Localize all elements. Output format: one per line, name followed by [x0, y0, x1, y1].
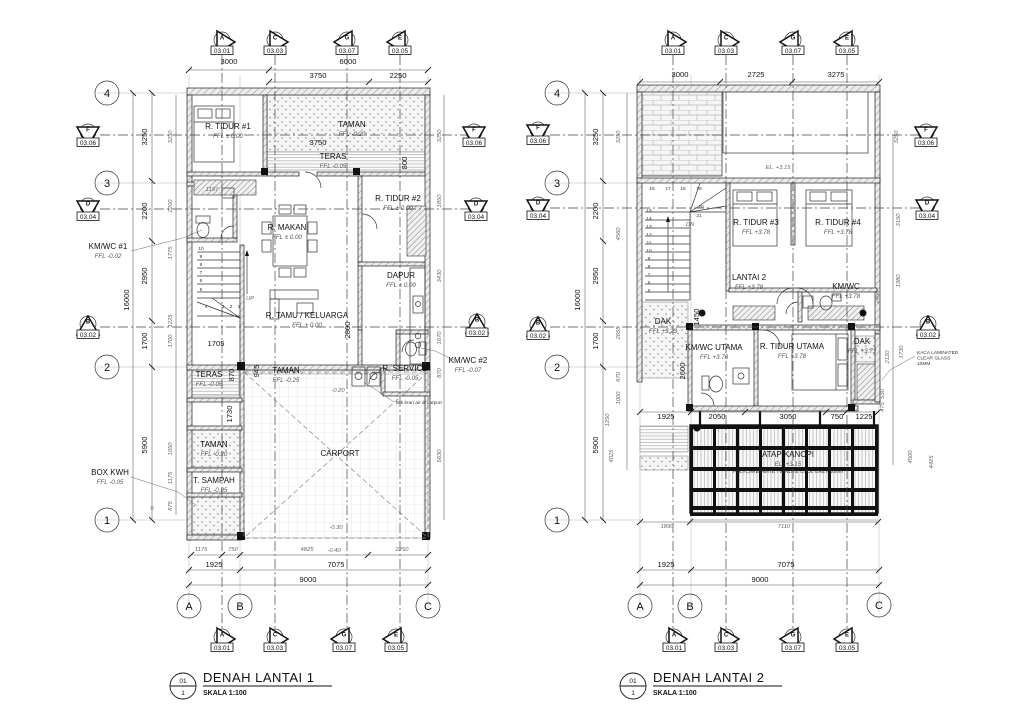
toilet-2 [406, 342, 417, 356]
section-marker-sheet: 03.04 [468, 214, 485, 221]
dimension-text: 19 [696, 186, 702, 192]
dimension-text: 3750 [310, 138, 327, 147]
drain-dot [860, 310, 867, 317]
dimension-text: 1700 [591, 333, 600, 350]
section-marker-sheet: 03.04 [530, 213, 547, 220]
section-marker-letter: G [791, 36, 796, 42]
dimension-text: 13 [646, 224, 652, 230]
dimension-text: 1925 [206, 560, 223, 569]
section-marker-letter: F [472, 128, 476, 134]
plan2-scale-text: SKALA 1:100 [653, 690, 697, 697]
roof-void [723, 88, 868, 153]
room-label: R. TAMU / KELUARGA [266, 311, 349, 320]
section-marker-sheet: 03.02 [80, 332, 97, 339]
room-label: TAMAN [338, 120, 366, 129]
dimension-text: DN [686, 222, 695, 228]
section-marker-sheet: 03.03 [718, 48, 735, 55]
room-level: FFL -0.05 [97, 479, 124, 486]
section-marker-letter: E [398, 36, 402, 42]
kitchen-sink [413, 296, 423, 313]
dimension-text: 16000 [573, 289, 582, 310]
dimension-text: 7110 [778, 524, 791, 530]
dimension-text: 8 [200, 262, 203, 268]
dimension-text: 21 [696, 213, 702, 219]
dimension-text: 4500 [908, 450, 914, 464]
section-marker-letter: G [791, 633, 796, 639]
room-label: R. TIDUR #4 [815, 218, 861, 227]
room-level: FFL +3.78 [742, 229, 771, 236]
dimension-text: 3250 [437, 129, 443, 143]
wardrobe-1 [194, 180, 256, 195]
dimension-text: 1670 [437, 331, 443, 345]
grid-bubble-label: C [424, 601, 432, 613]
section-marker-sheet: 03.05 [839, 645, 856, 652]
dimension-text: 475 [880, 401, 886, 411]
dimension-text: 2655 [616, 326, 622, 341]
annotation-note: POLYCARBONATE TWINLITE COOL GREY 10mm [733, 469, 843, 475]
plan2: R. TIDUR #3FFL +3.78R. TIDUR #4FFL +3.78… [527, 31, 959, 699]
room-level: FFL -0.05 [392, 375, 419, 382]
dimension-text: 1225 [856, 412, 873, 421]
dimension-text: 2200 [140, 203, 149, 220]
section-marker-letter: D [474, 202, 479, 208]
section-marker-letter: B [536, 321, 541, 327]
dimension-text: 3275 [828, 70, 845, 79]
drawing-sheet: R. TIDUR #1FFL ± 0.00TAMANFFL -0.20TERAS… [0, 0, 1024, 724]
section-marker-sheet: 03.02 [920, 332, 937, 339]
section-marker-sheet: 03.01 [665, 48, 682, 55]
section-marker-letter: C [273, 633, 278, 639]
dimension-text: -0.30 [329, 525, 343, 531]
dimension-text: 4560 [616, 227, 622, 241]
dimension-text: 3250 [616, 130, 622, 144]
room-level: FFL ± 0.00 [292, 322, 322, 329]
dimension-text: 750 [831, 412, 844, 421]
room-level: FFL -0.02 [95, 253, 122, 260]
dimension-text: 11 [647, 240, 652, 246]
section-marker-letter: E [394, 633, 398, 639]
dimension-text: 1050 [168, 442, 174, 456]
grid-bubble-label: 4 [104, 88, 110, 100]
dimension-text: 4825 [301, 547, 315, 553]
annotation-note: KACA LAMINATEDCLEAR GLASS10MM [917, 350, 959, 367]
dimension-text: 2200 [168, 199, 174, 214]
dimension-text: 1175 [168, 471, 174, 484]
dimension-text: 3250 [140, 129, 149, 146]
room-label: DAK [655, 317, 672, 326]
title-number: 01 [179, 678, 187, 685]
sink-utama [733, 368, 749, 384]
dimension-text: 2050 [709, 412, 726, 421]
room-level: FFL -0.05 [201, 487, 228, 494]
room-level: FFL -0.05 [196, 381, 223, 388]
room-level: FFL +3.78 [700, 354, 729, 361]
dimension-text: 14 [646, 216, 652, 222]
room-level: FFL ± 0.00 [213, 133, 243, 140]
grid-bubble-label: C [875, 600, 883, 612]
dimension-text: 3150 [896, 213, 902, 227]
room-label: TAMAN [272, 366, 300, 375]
room-label: R. SERVICE [382, 364, 427, 373]
dimension-text: 1700 [140, 333, 149, 350]
dak-strip2 [640, 456, 688, 470]
section-marker-sheet: 03.07 [785, 48, 802, 55]
dimension-text: 1850 [437, 194, 443, 208]
dimension-text: 1 [238, 304, 241, 310]
room-label: R. MAKAN [268, 223, 307, 232]
wardrobe-3 [733, 306, 775, 320]
room-label: TERAS [196, 370, 223, 379]
grid-bubble-label: 3 [554, 178, 560, 190]
section-marker-letter: F [536, 126, 540, 132]
section-marker-letter: F [86, 128, 90, 134]
dimension-text: 12 [646, 232, 652, 238]
section-marker-sheet: 03.05 [388, 645, 405, 652]
section-marker-sheet: 03.05 [839, 48, 856, 55]
dimension-text: 870 [227, 369, 236, 382]
dimension-text: 1775 [168, 246, 174, 260]
section-marker-sheet: 03.03 [267, 48, 284, 55]
dimension-text: 875 [168, 500, 174, 510]
dimension-text: 2250 [395, 547, 410, 553]
section-marker-sheet: 03.02 [530, 333, 547, 340]
room-level: FFL -0.25 [273, 377, 300, 384]
drain-dot [694, 425, 701, 432]
dimension-text: 750 [228, 547, 238, 553]
dimension-text: 1250 [605, 413, 611, 427]
dimension-text: 3250 [894, 130, 900, 144]
dimension-text: 2600 [678, 363, 687, 380]
section-marker-letter: G [342, 633, 347, 639]
section-marker-letter: A [220, 633, 225, 639]
room-level: FFL +3.78 [824, 229, 853, 236]
room-label: KM/WC UTAMA [685, 343, 743, 352]
section-marker-letter: C [724, 36, 729, 42]
grid-bubble-label: A [636, 601, 644, 613]
room-level: FFL ± 0.00 [386, 282, 416, 289]
section-marker-sheet: 03.07 [785, 645, 802, 652]
dimension-text: 2950 [591, 268, 600, 285]
toilet-1-tank [196, 216, 210, 223]
section-marker-sheet: 03.01 [214, 48, 231, 55]
dimension-text: 1197 [206, 187, 219, 193]
dimension-text: 2 [230, 304, 233, 310]
dimension-text: 1380 [896, 274, 902, 288]
dimension-text: 1175 [195, 547, 208, 553]
plan1-scale-text: SKALA 1:100 [203, 690, 247, 697]
section-marker-sheet: 03.07 [336, 645, 353, 652]
dimension-text: 945 [252, 365, 261, 378]
section-marker-letter: D [536, 201, 541, 207]
stairs-2-treads [645, 183, 726, 300]
grid-bubble-label: 1 [104, 515, 110, 527]
annotation-note-line: KACA LAMINATED [917, 350, 959, 356]
dimension-text: 1730 [899, 345, 905, 359]
dimension-text: 3250 [168, 130, 174, 144]
dimension-text: 3 [222, 304, 225, 310]
title-denominator: 1 [181, 690, 185, 697]
room-level: FFL +3.78 [832, 293, 861, 300]
section-marker-letter: A [220, 36, 225, 42]
plan2-title: 01 1 DENAH LANTAI 2 SKALA 1:100 [620, 670, 782, 699]
grid-bubble-label: B [236, 601, 243, 613]
room-label: TERAS [320, 152, 347, 161]
room-label: DAK [854, 337, 871, 346]
section-marker-sheet: 03.04 [80, 214, 97, 221]
dak-strip [640, 426, 688, 452]
section-marker-letter: C [724, 633, 729, 639]
dimension-text: 5900 [140, 437, 149, 454]
section-marker-sheet: 03.03 [267, 645, 284, 652]
title-denominator: 1 [631, 690, 635, 697]
sofa [270, 290, 318, 299]
plan2-title-text: DENAH LANTAI 2 [653, 670, 765, 685]
dimension-text: 2120 [885, 350, 891, 365]
dimension-text: 7075 [328, 560, 345, 569]
grid-bubble-label: B [686, 601, 693, 613]
room-label: CARPORT [321, 449, 360, 458]
floorplan-drawing: R. TIDUR #1FFL ± 0.00TAMANFFL -0.20TERAS… [0, 0, 1024, 724]
dimension-text: 3050 [780, 412, 797, 421]
room-label: R. TIDUR #2 [375, 194, 421, 203]
dimension-text: 7075 [778, 560, 795, 569]
dimension-text: 9 [200, 254, 203, 260]
dimension-text: 4 [205, 304, 208, 310]
dimension-text: 10 [646, 248, 652, 254]
dimension-text: 530 [880, 388, 886, 398]
toilet-utama-tank [702, 376, 709, 390]
dimension-text: 0 [150, 506, 154, 512]
room-label: BOX KWH [91, 468, 129, 477]
room-level: FFL +3.23 [649, 328, 678, 335]
room-label: DAPUR [387, 271, 415, 280]
plan1: R. TIDUR #1FFL ± 0.00TAMANFFL -0.20TERAS… [77, 31, 488, 699]
section-marker-sheet: 03.06 [466, 140, 483, 147]
annotation-note-line: 10MM [917, 361, 930, 367]
dimension-text: 18 [680, 186, 686, 192]
grid-bubble-label: 1 [554, 515, 560, 527]
dimension-text: 10 [198, 246, 204, 252]
dimension-text: 9 [648, 256, 651, 262]
grid-bubble-label: A [185, 601, 193, 613]
room-label: KM/WC #2 [449, 356, 488, 365]
plan2-annotations: R. TIDUR #3FFL +3.78R. TIDUR #4FFL +3.78… [527, 31, 959, 652]
room-label: KM/WC [832, 282, 860, 291]
dimension-text: 5630 [437, 449, 443, 463]
section-marker-sheet: 03.06 [918, 140, 935, 147]
room-level: FFL +3.78 [735, 284, 764, 291]
dimension-text: 5 [200, 287, 203, 293]
dimension-text: UP [246, 296, 254, 302]
room-level: FFL ± 0.00 [383, 205, 413, 212]
section-marker-sheet: 03.01 [214, 645, 231, 652]
section-marker-letter: E [845, 633, 849, 639]
plan1-title: 01 1 DENAH LANTAI 1 SKALA 1:100 [170, 670, 332, 699]
dimension-text: 6 [200, 278, 203, 284]
section-marker-sheet: 03.01 [666, 645, 683, 652]
room-level: FFL -0.20 [201, 451, 228, 458]
dimension-text: 8 [648, 264, 651, 270]
room-level: FFL +3.73 [848, 348, 877, 355]
dimension-text: 16000 [122, 289, 131, 310]
section-marker-letter: A [672, 633, 677, 639]
grid-bubble-label: 4 [554, 88, 560, 100]
dimension-text: 1000 [616, 391, 622, 405]
plan1-title-text: DENAH LANTAI 1 [203, 670, 315, 685]
dimension-text: 2200 [591, 203, 600, 220]
section-marker-letter: C [273, 36, 278, 42]
dimension-text: -0.20 [331, 388, 345, 394]
door-arcs [221, 172, 414, 384]
kwh-box-area [190, 497, 240, 534]
section-marker-letter: G [345, 36, 350, 42]
dimension-text: 870 [437, 367, 443, 377]
dimension-text: 5900 [591, 437, 600, 454]
wardrobe-4 [808, 306, 864, 320]
dimension-text: 7 [200, 270, 203, 276]
dimension-text: 1925 [658, 560, 675, 569]
dimension-text: 15 [646, 208, 652, 214]
dimension-text: 3750 [310, 71, 327, 80]
roof-tile-area [640, 90, 722, 176]
section-marker-sheet: 03.03 [718, 645, 735, 652]
dimension-text: 670 [616, 371, 622, 381]
dimension-text: 1705 [208, 339, 225, 348]
dimension-text: 1890 [661, 524, 675, 530]
dimension-text: 4425 [929, 455, 935, 469]
room-level: FFL -0.07 [455, 367, 482, 374]
room-level: FFL -0.05 [320, 163, 347, 170]
dimension-text: 1225 [168, 314, 174, 328]
section-marker-sheet: 03.02 [469, 330, 486, 337]
dimension-text: 20 [698, 204, 704, 210]
dimension-text: 9000 [752, 575, 769, 584]
room-level: EL. +3.15 [775, 461, 802, 468]
section-marker-letter: B [926, 320, 931, 326]
grid-bubble-label: 3 [104, 178, 110, 190]
dimension-text: EL. +3.15 [766, 165, 792, 171]
grid-bubble-label: 2 [554, 362, 560, 374]
toilet-utama [710, 376, 723, 392]
bed-2 [407, 206, 426, 256]
room-label: R. TIDUR #1 [205, 122, 251, 131]
dimension-text: 1925 [658, 412, 675, 421]
section-marker-sheet: 03.06 [80, 140, 97, 147]
dimension-text: 4025 [609, 449, 615, 463]
annotation-note-line: titik kran air di carport [396, 400, 443, 406]
dimension-text: 16 [649, 186, 655, 192]
dimension-text: 800 [400, 157, 409, 170]
room-level: FFL ± 0.00 [272, 234, 302, 241]
section-marker-letter: D [86, 202, 91, 208]
dimension-text: 2450 [875, 290, 881, 305]
dimension-text: 7 [648, 272, 651, 278]
annotation-note: titik kran air di carport [396, 400, 443, 406]
dimension-text: 3000 [221, 57, 238, 66]
section-marker-sheet: 03.04 [919, 213, 936, 220]
section-marker-letter: D [925, 201, 930, 207]
dimension-text: 6 [648, 280, 651, 286]
dimension-text: 2250 [390, 71, 407, 80]
dimension-text: 1700 [168, 334, 174, 348]
room-label: TAMAN [200, 440, 228, 449]
room-label: LANTAI 2 [732, 273, 767, 282]
dimension-text: -0.40 [327, 548, 341, 554]
section-marker-sheet: 03.07 [339, 48, 356, 55]
grid-bubble-label: 2 [104, 362, 110, 374]
room-label: R. TIDUR #3 [733, 218, 779, 227]
room-label: ATAP KANOPI [762, 450, 814, 459]
room-label: KM/WC #1 [89, 242, 128, 251]
dimension-text: 1450 [692, 309, 701, 326]
dimension-text: 2800 [343, 322, 352, 339]
dimension-text: 17 [665, 186, 671, 192]
section-marker-sheet: 03.06 [530, 138, 547, 145]
dimension-text: 3430 [437, 269, 443, 283]
room-label: R. TIDUR UTAMA [760, 342, 825, 351]
dimension-text: 5 [648, 288, 651, 294]
section-marker-letter: F [924, 128, 928, 134]
room-level: FFL -0.20 [339, 131, 366, 138]
room-level: FFL +3.78 [778, 353, 807, 360]
dimension-text: 3250 [591, 129, 600, 146]
dimension-text: 2725 [748, 70, 765, 79]
room-label: T. SAMPAH [193, 476, 235, 485]
stairs-1-treads [197, 252, 240, 318]
dimension-text: 2950 [140, 268, 149, 285]
dimension-text: 3000 [672, 70, 689, 79]
annotation-note-line: POLYCARBONATE TWINLITE COOL GREY 10mm [733, 469, 843, 475]
section-marker-letter: E [845, 36, 849, 42]
section-marker-sheet: 03.05 [392, 48, 409, 55]
dimension-text: 6000 [340, 57, 357, 66]
section-marker-letter: B [86, 320, 91, 326]
annotation-note-line: CLEAR GLASS [917, 356, 950, 362]
title-number: 01 [629, 678, 637, 685]
section-marker-letter: A [671, 36, 676, 42]
dimension-text: 1730 [225, 406, 234, 423]
toilet-1 [197, 223, 209, 238]
dimension-text: 9000 [300, 575, 317, 584]
section-marker-letter: B [475, 318, 480, 324]
